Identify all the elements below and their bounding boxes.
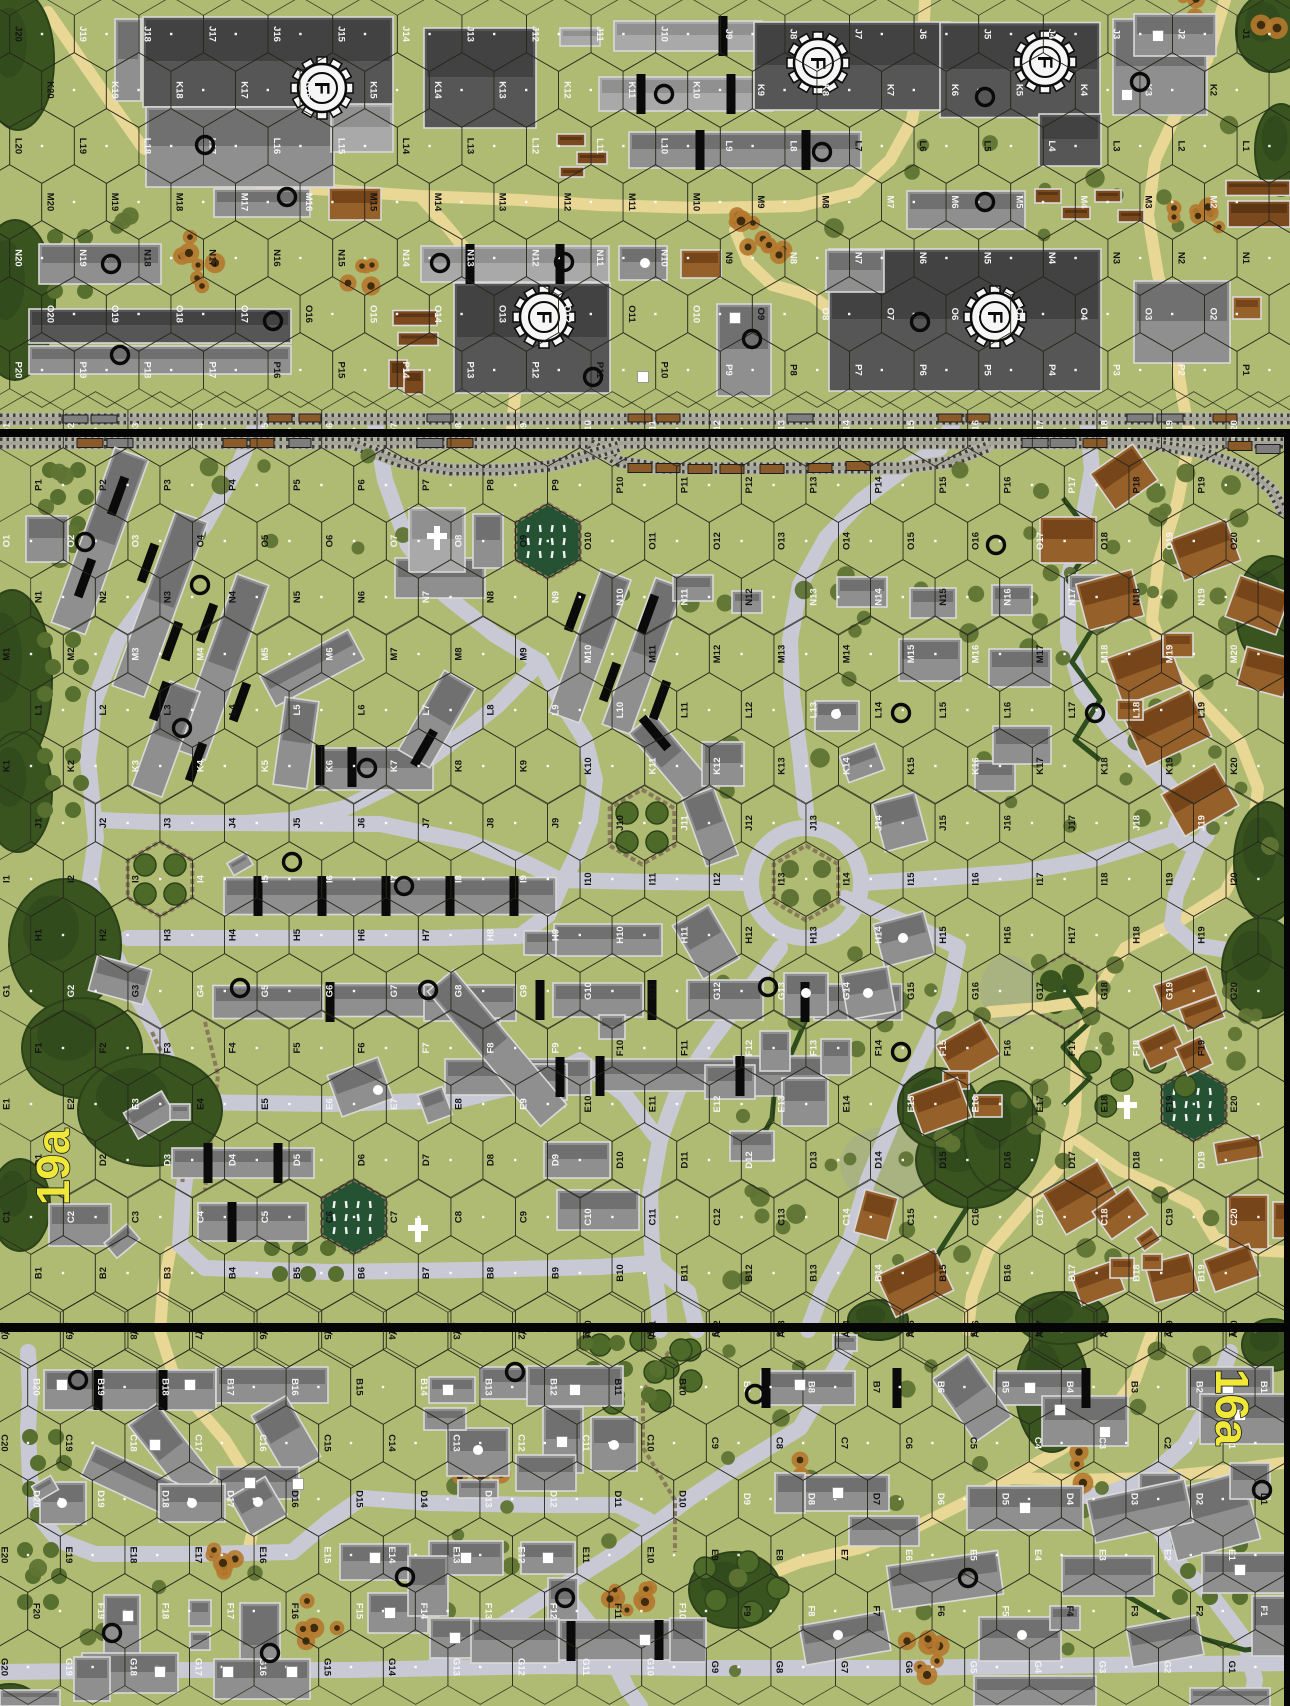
svg-text:C19: C19 xyxy=(63,1434,74,1451)
svg-text:N11: N11 xyxy=(680,588,691,606)
svg-text:E15: E15 xyxy=(906,1095,917,1113)
train-car xyxy=(107,439,133,448)
svg-text:D6: D6 xyxy=(935,1493,946,1505)
svg-text:G3: G3 xyxy=(131,985,142,998)
svg-text:K6: K6 xyxy=(949,84,960,96)
train-car xyxy=(938,414,962,422)
svg-text:E7: E7 xyxy=(389,1098,400,1110)
svg-text:D14: D14 xyxy=(873,1151,884,1169)
svg-text:D9: D9 xyxy=(550,1154,561,1166)
svg-text:H7: H7 xyxy=(421,929,432,941)
svg-text:I2: I2 xyxy=(66,875,77,883)
svg-text:J2: J2 xyxy=(98,818,109,829)
svg-text:O17: O17 xyxy=(238,305,249,323)
svg-text:L7: L7 xyxy=(852,140,863,151)
svg-text:G8: G8 xyxy=(774,1661,785,1674)
svg-text:F14: F14 xyxy=(418,1603,429,1620)
svg-text:I1: I1 xyxy=(2,874,13,883)
svg-text:F2: F2 xyxy=(1193,1605,1204,1616)
svg-text:D7: D7 xyxy=(421,1154,432,1166)
asl-hex-map[interactable]: FFFFFJ1J2J3J4J5J6J7J8J9J10J11J12J13J14J1… xyxy=(0,0,1290,1706)
svg-text:K7: K7 xyxy=(884,84,895,96)
svg-text:M2: M2 xyxy=(66,647,77,660)
svg-text:G20: G20 xyxy=(1229,982,1240,1000)
svg-text:G10: G10 xyxy=(583,982,594,1000)
svg-text:M5: M5 xyxy=(1013,195,1024,209)
svg-text:C4: C4 xyxy=(195,1210,206,1223)
svg-text:M10: M10 xyxy=(690,193,701,211)
svg-text:E5: E5 xyxy=(260,1097,271,1109)
train-car xyxy=(223,439,247,448)
svg-text:K19: K19 xyxy=(1164,757,1175,774)
svg-text:I10: I10 xyxy=(583,872,594,885)
svg-text:P14: P14 xyxy=(873,476,884,494)
svg-text:G17: G17 xyxy=(192,1658,203,1676)
svg-text:B3: B3 xyxy=(1129,1381,1140,1393)
svg-text:O7: O7 xyxy=(884,308,895,321)
svg-text:B19: B19 xyxy=(1196,1264,1207,1281)
svg-text:C2: C2 xyxy=(1161,1437,1172,1449)
svg-text:E12: E12 xyxy=(515,1547,526,1564)
svg-text:K6: K6 xyxy=(325,760,336,772)
svg-text:P14: P14 xyxy=(400,362,411,380)
svg-text:F5: F5 xyxy=(292,1042,303,1054)
svg-text:C20: C20 xyxy=(0,1434,9,1451)
svg-text:F6: F6 xyxy=(935,1605,946,1616)
svg-text:N19: N19 xyxy=(77,249,88,266)
board-label-16a: 16a xyxy=(1206,1369,1258,1446)
svg-text:L17: L17 xyxy=(1067,702,1078,718)
svg-text:K11: K11 xyxy=(626,82,637,100)
svg-text:N3: N3 xyxy=(1111,252,1122,264)
svg-text:N2: N2 xyxy=(98,591,109,603)
svg-text:O5: O5 xyxy=(1013,308,1024,321)
svg-text:N3: N3 xyxy=(163,591,174,603)
svg-text:M1: M1 xyxy=(2,647,13,661)
svg-text:F11: F11 xyxy=(680,1039,691,1056)
svg-text:C9: C9 xyxy=(709,1437,720,1449)
svg-text:B16: B16 xyxy=(289,1378,300,1395)
svg-text:D17: D17 xyxy=(1067,1151,1078,1168)
svg-text:F17: F17 xyxy=(224,1603,235,1619)
svg-text:G7: G7 xyxy=(838,1661,849,1674)
svg-text:B10: B10 xyxy=(676,1378,687,1395)
svg-text:J10: J10 xyxy=(658,26,669,42)
svg-text:M15: M15 xyxy=(906,644,917,663)
svg-text:K13: K13 xyxy=(777,757,788,774)
svg-text:G5: G5 xyxy=(260,984,271,997)
svg-text:M13: M13 xyxy=(777,645,788,663)
svg-text:E7: E7 xyxy=(838,1549,849,1561)
svg-text:G17: G17 xyxy=(1035,982,1046,1000)
svg-text:H6: H6 xyxy=(357,929,368,941)
svg-text:O14: O14 xyxy=(841,531,852,550)
svg-text:K4: K4 xyxy=(1078,84,1089,97)
svg-text:J7: J7 xyxy=(421,818,432,829)
svg-text:L16: L16 xyxy=(271,138,282,154)
svg-text:B1: B1 xyxy=(1258,1381,1269,1394)
svg-text:N7: N7 xyxy=(421,591,432,603)
svg-text:B4: B4 xyxy=(227,1266,238,1279)
svg-text:E12: E12 xyxy=(712,1096,723,1113)
svg-text:E20: E20 xyxy=(0,1547,9,1564)
svg-text:J10: J10 xyxy=(615,815,626,831)
svg-text:C17: C17 xyxy=(1035,1208,1046,1225)
train-car xyxy=(268,414,292,422)
svg-text:N8: N8 xyxy=(486,591,497,603)
svg-text:E15: E15 xyxy=(321,1547,332,1565)
svg-text:O5: O5 xyxy=(260,534,271,547)
svg-text:O2: O2 xyxy=(1207,308,1218,321)
svg-text:N5: N5 xyxy=(981,252,992,265)
svg-text:J11: J11 xyxy=(680,815,691,831)
svg-text:G12: G12 xyxy=(712,982,723,1000)
svg-text:F5: F5 xyxy=(999,1605,1010,1617)
svg-text:O9: O9 xyxy=(518,535,529,548)
svg-text:D8: D8 xyxy=(806,1493,817,1505)
svg-text:B15: B15 xyxy=(353,1378,364,1396)
svg-text:H4: H4 xyxy=(227,928,238,941)
svg-text:C15: C15 xyxy=(906,1208,917,1226)
svg-text:J13: J13 xyxy=(465,26,476,42)
svg-text:L4: L4 xyxy=(227,704,238,716)
svg-text:L15: L15 xyxy=(938,701,949,718)
asl-map-root[interactable]: FFFFFJ1J2J3J4J5J6J7J8J9J10J11J12J13J14J1… xyxy=(0,0,1290,1706)
svg-text:I4: I4 xyxy=(195,874,206,883)
svg-text:H12: H12 xyxy=(744,926,755,943)
svg-text:N20: N20 xyxy=(12,249,23,266)
svg-text:B11: B11 xyxy=(680,1264,691,1282)
svg-text:D19: D19 xyxy=(95,1490,106,1507)
svg-text:C17: C17 xyxy=(192,1434,203,1451)
svg-text:O19: O19 xyxy=(109,305,120,323)
svg-text:H8: H8 xyxy=(486,929,497,941)
svg-text:P9: P9 xyxy=(550,479,561,491)
svg-text:M6: M6 xyxy=(325,647,336,660)
train-car xyxy=(1022,439,1048,448)
svg-text:F11: F11 xyxy=(612,1603,623,1620)
svg-text:O13: O13 xyxy=(497,305,508,323)
svg-text:J6: J6 xyxy=(917,29,928,40)
train-car xyxy=(417,439,443,448)
svg-text:N12: N12 xyxy=(744,588,755,605)
svg-text:D13: D13 xyxy=(483,1490,494,1507)
svg-text:M15: M15 xyxy=(367,193,378,212)
svg-text:O16: O16 xyxy=(971,532,982,550)
svg-text:O17: O17 xyxy=(1035,532,1046,550)
svg-text:K13: K13 xyxy=(497,81,508,98)
svg-text:N16: N16 xyxy=(1003,588,1014,605)
svg-text:L9: L9 xyxy=(550,704,561,715)
svg-text:N17: N17 xyxy=(206,249,217,266)
svg-text:H10: H10 xyxy=(615,926,626,943)
svg-text:L2: L2 xyxy=(1175,140,1186,151)
train-car xyxy=(808,464,832,473)
svg-text:P13: P13 xyxy=(809,477,820,494)
svg-text:D15: D15 xyxy=(353,1490,364,1508)
svg-text:O9: O9 xyxy=(755,308,766,321)
svg-text:L8: L8 xyxy=(788,140,799,151)
svg-text:I9: I9 xyxy=(518,875,529,883)
svg-text:D18: D18 xyxy=(160,1490,171,1507)
svg-text:O3: O3 xyxy=(131,535,142,548)
svg-text:M11: M11 xyxy=(648,644,659,663)
svg-text:D2: D2 xyxy=(98,1154,109,1166)
svg-text:L5: L5 xyxy=(981,140,992,152)
svg-text:J13: J13 xyxy=(809,815,820,831)
svg-text:E11: E11 xyxy=(580,1547,591,1564)
svg-text:D2: D2 xyxy=(1193,1493,1204,1505)
svg-text:K15: K15 xyxy=(367,81,378,99)
board-label-19a: 19a xyxy=(27,1128,79,1205)
svg-text:J14: J14 xyxy=(873,814,884,831)
svg-text:B14: B14 xyxy=(873,1264,884,1282)
svg-text:O7: O7 xyxy=(389,535,400,548)
svg-text:P16: P16 xyxy=(1003,477,1014,494)
svg-text:K9: K9 xyxy=(755,84,766,96)
svg-text:D12: D12 xyxy=(744,1151,755,1168)
svg-text:O11: O11 xyxy=(648,532,659,550)
svg-text:O19: O19 xyxy=(1164,532,1175,550)
svg-text:P17: P17 xyxy=(1067,477,1078,494)
svg-text:J15: J15 xyxy=(938,814,949,831)
svg-text:P1: P1 xyxy=(34,478,45,490)
svg-text:C6: C6 xyxy=(325,1211,336,1223)
svg-text:J9: J9 xyxy=(550,818,561,829)
svg-text:P3: P3 xyxy=(163,479,174,491)
svg-text:E18: E18 xyxy=(1100,1096,1111,1113)
svg-text:B13: B13 xyxy=(483,1378,494,1395)
svg-text:J8: J8 xyxy=(486,818,497,829)
svg-text:B15: B15 xyxy=(938,1264,949,1282)
svg-text:M18: M18 xyxy=(174,193,185,211)
svg-text:C18: C18 xyxy=(1100,1208,1111,1225)
svg-text:C19: C19 xyxy=(1164,1208,1175,1225)
svg-text:F20: F20 xyxy=(30,1603,41,1619)
svg-text:L3: L3 xyxy=(163,704,174,715)
svg-text:D17: D17 xyxy=(224,1490,235,1507)
svg-text:E10: E10 xyxy=(583,1096,594,1113)
svg-text:F7: F7 xyxy=(870,1605,881,1616)
svg-text:I12: I12 xyxy=(712,872,723,885)
svg-text:C15: C15 xyxy=(321,1434,332,1452)
svg-text:F: F xyxy=(983,311,1006,324)
svg-text:L18: L18 xyxy=(142,138,153,154)
svg-text:O1: O1 xyxy=(2,534,13,547)
svg-text:L19: L19 xyxy=(77,138,88,154)
svg-text:E19: E19 xyxy=(63,1547,74,1564)
svg-text:B17: B17 xyxy=(224,1378,235,1395)
svg-text:O20: O20 xyxy=(1229,532,1240,550)
train-car xyxy=(1228,442,1252,451)
svg-text:D8: D8 xyxy=(486,1154,497,1166)
svg-text:K15: K15 xyxy=(906,757,917,775)
svg-text:J12: J12 xyxy=(744,815,755,831)
svg-text:J11: J11 xyxy=(594,26,605,42)
svg-text:E18: E18 xyxy=(128,1547,139,1564)
svg-text:H16: H16 xyxy=(1003,926,1014,943)
svg-text:F6: F6 xyxy=(357,1042,368,1053)
svg-text:M7: M7 xyxy=(884,195,895,208)
svg-text:O15: O15 xyxy=(906,531,917,550)
svg-text:H11: H11 xyxy=(680,926,691,944)
svg-text:D13: D13 xyxy=(809,1151,820,1168)
svg-text:L3: L3 xyxy=(1111,140,1122,151)
svg-text:F17: F17 xyxy=(1067,1040,1078,1056)
svg-text:K14: K14 xyxy=(841,757,852,775)
train-car xyxy=(91,415,117,423)
svg-text:B9: B9 xyxy=(550,1267,561,1279)
svg-text:O8: O8 xyxy=(820,308,831,321)
svg-text:C10: C10 xyxy=(644,1434,655,1451)
svg-text:G14: G14 xyxy=(386,1658,397,1677)
svg-text:P3: P3 xyxy=(1111,364,1122,376)
svg-text:M7: M7 xyxy=(389,647,400,660)
svg-text:K17: K17 xyxy=(238,81,249,98)
svg-text:C1: C1 xyxy=(2,1210,13,1223)
svg-text:L4: L4 xyxy=(1046,140,1057,152)
svg-text:P6: P6 xyxy=(917,364,928,376)
svg-text:F: F xyxy=(532,311,555,324)
svg-text:L2: L2 xyxy=(98,704,109,715)
svg-text:K2: K2 xyxy=(1207,84,1218,96)
svg-text:J16: J16 xyxy=(1003,815,1014,831)
svg-text:P15: P15 xyxy=(938,476,949,494)
svg-text:G1: G1 xyxy=(2,984,13,997)
svg-text:O13: O13 xyxy=(777,532,788,550)
svg-text:D20: D20 xyxy=(30,1490,41,1507)
svg-text:F9: F9 xyxy=(550,1042,561,1053)
svg-text:F18: F18 xyxy=(1132,1040,1143,1056)
svg-text:P8: P8 xyxy=(788,364,799,376)
svg-text:N13: N13 xyxy=(465,249,476,266)
svg-text:F10: F10 xyxy=(676,1603,687,1619)
svg-text:C20: C20 xyxy=(1229,1208,1240,1225)
svg-text:M20: M20 xyxy=(1229,645,1240,663)
svg-text:L5: L5 xyxy=(292,704,303,716)
svg-text:I11: I11 xyxy=(648,872,659,885)
svg-text:M5: M5 xyxy=(260,647,271,661)
svg-text:C3: C3 xyxy=(131,1211,142,1223)
svg-text:N11: N11 xyxy=(594,250,605,268)
svg-text:F1: F1 xyxy=(34,1042,45,1054)
svg-text:N1: N1 xyxy=(1240,252,1251,265)
svg-text:E3: E3 xyxy=(131,1098,142,1110)
svg-text:C13: C13 xyxy=(777,1208,788,1225)
svg-text:L11: L11 xyxy=(680,701,691,718)
svg-text:P18: P18 xyxy=(142,362,153,379)
svg-text:B8: B8 xyxy=(486,1267,497,1279)
svg-text:F8: F8 xyxy=(486,1042,497,1053)
svg-text:C5: C5 xyxy=(260,1210,271,1223)
svg-text:O18: O18 xyxy=(1100,532,1111,550)
svg-text:K20: K20 xyxy=(44,81,55,98)
svg-text:J1: J1 xyxy=(34,817,45,828)
svg-text:E17: E17 xyxy=(1035,1096,1046,1113)
svg-text:C14: C14 xyxy=(841,1208,852,1226)
svg-text:F15: F15 xyxy=(353,1603,364,1620)
svg-text:E5: E5 xyxy=(967,1549,978,1561)
svg-text:G11: G11 xyxy=(648,982,659,1000)
svg-text:O4: O4 xyxy=(1078,308,1089,321)
svg-text:H15: H15 xyxy=(938,926,949,944)
svg-text:D10: D10 xyxy=(676,1490,687,1507)
svg-text:D7: D7 xyxy=(870,1493,881,1505)
svg-text:L12: L12 xyxy=(529,138,540,154)
svg-text:C16: C16 xyxy=(257,1434,268,1451)
svg-text:N17: N17 xyxy=(1067,588,1078,605)
svg-text:D6: D6 xyxy=(357,1154,368,1166)
svg-text:N9: N9 xyxy=(723,252,734,264)
svg-text:M17: M17 xyxy=(1035,645,1046,663)
svg-text:F16: F16 xyxy=(289,1603,300,1619)
svg-text:D15: D15 xyxy=(938,1151,949,1169)
svg-text:N13: N13 xyxy=(809,588,820,605)
svg-text:H18: H18 xyxy=(1132,926,1143,943)
svg-text:N10: N10 xyxy=(658,249,669,266)
svg-text:I5: I5 xyxy=(260,874,271,883)
svg-text:P7: P7 xyxy=(852,364,863,376)
svg-text:F9: F9 xyxy=(741,1605,752,1616)
svg-text:M6: M6 xyxy=(949,195,960,208)
svg-text:P17: P17 xyxy=(206,362,217,379)
svg-text:L1: L1 xyxy=(34,704,45,716)
svg-text:G6: G6 xyxy=(903,1661,914,1674)
svg-text:I6: I6 xyxy=(325,875,336,883)
svg-text:M8: M8 xyxy=(454,647,465,660)
svg-text:F16: F16 xyxy=(1003,1040,1014,1056)
svg-text:G3: G3 xyxy=(1097,1661,1108,1674)
svg-text:E2: E2 xyxy=(66,1098,77,1110)
svg-text:E9: E9 xyxy=(518,1098,529,1110)
svg-text:O12: O12 xyxy=(561,305,572,323)
svg-text:M14: M14 xyxy=(841,644,852,663)
svg-text:N8: N8 xyxy=(788,252,799,264)
svg-text:D12: D12 xyxy=(547,1490,558,1507)
svg-text:C7: C7 xyxy=(838,1437,849,1449)
svg-text:C4: C4 xyxy=(1032,1437,1043,1450)
svg-text:K1: K1 xyxy=(2,759,13,772)
svg-text:I15: I15 xyxy=(906,872,917,886)
svg-text:D16: D16 xyxy=(289,1490,300,1507)
svg-text:N18: N18 xyxy=(1132,588,1143,605)
svg-text:C11: C11 xyxy=(580,1435,591,1453)
svg-text:P7: P7 xyxy=(421,479,432,491)
svg-text:C2: C2 xyxy=(66,1211,77,1223)
svg-text:O12: O12 xyxy=(712,532,723,550)
svg-text:F2: F2 xyxy=(98,1042,109,1053)
train-car xyxy=(760,465,784,474)
svg-text:J7: J7 xyxy=(852,29,863,40)
svg-text:N2: N2 xyxy=(1175,252,1186,264)
svg-text:L6: L6 xyxy=(357,704,368,715)
svg-text:F4: F4 xyxy=(1064,1605,1075,1617)
svg-text:G8: G8 xyxy=(454,985,465,998)
svg-text:P15: P15 xyxy=(335,362,346,380)
svg-text:L14: L14 xyxy=(873,701,884,718)
svg-text:D9: D9 xyxy=(741,1493,752,1505)
svg-text:G15: G15 xyxy=(906,981,917,1000)
svg-text:M17: M17 xyxy=(238,193,249,211)
svg-text:B3: B3 xyxy=(163,1267,174,1279)
svg-text:L9: L9 xyxy=(723,140,734,151)
train-car xyxy=(787,414,813,422)
svg-text:B17: B17 xyxy=(1067,1264,1078,1281)
svg-text:E6: E6 xyxy=(903,1549,914,1561)
svg-text:L13: L13 xyxy=(809,702,820,718)
train-car xyxy=(1127,414,1153,422)
svg-text:K14: K14 xyxy=(432,81,443,99)
